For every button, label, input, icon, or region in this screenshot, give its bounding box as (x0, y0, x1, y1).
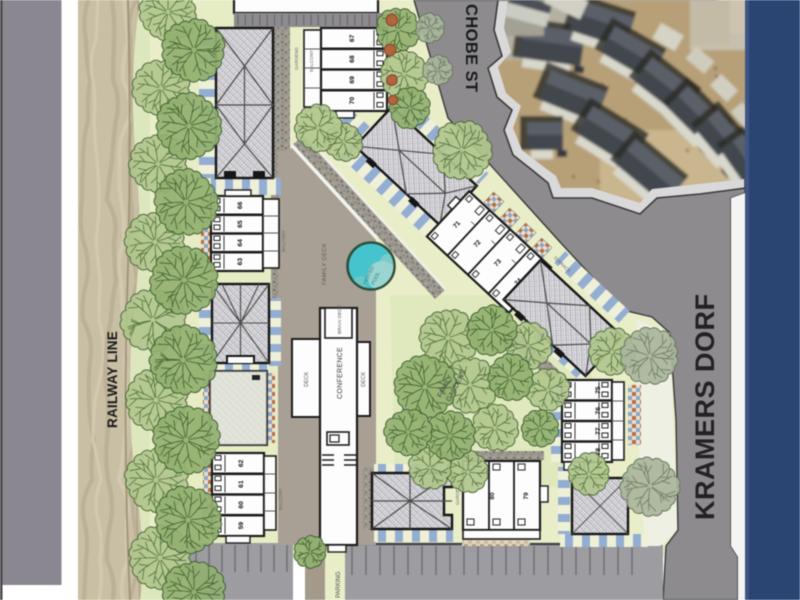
svg-text:66: 66 (237, 201, 244, 209)
svg-text:63: 63 (237, 258, 244, 266)
svg-text:DECK: DECK (361, 371, 367, 387)
svg-text:77: 77 (595, 427, 602, 435)
svg-text:64: 64 (237, 239, 244, 247)
svg-text:KRAMERS DORF: KRAMERS DORF (690, 294, 720, 521)
svg-text:BALCONY: BALCONY (278, 488, 283, 510)
svg-text:RAILWAY LINE: RAILWAY LINE (105, 331, 120, 428)
svg-text:CONFERENCE: CONFERENCE (337, 347, 344, 399)
svg-text:76: 76 (595, 407, 602, 415)
svg-text:79: 79 (523, 492, 530, 500)
svg-text:BALCONY: BALCONY (281, 230, 286, 252)
svg-text:CHOBE ST: CHOBE ST (462, 4, 480, 92)
svg-text:67: 67 (349, 34, 356, 42)
svg-text:70: 70 (349, 97, 356, 105)
svg-text:DECK: DECK (304, 371, 310, 387)
svg-text:69: 69 (349, 76, 356, 84)
svg-text:59: 59 (238, 522, 245, 530)
svg-text:75: 75 (595, 386, 602, 394)
svg-text:BRAAI DECK: BRAAI DECK (337, 304, 343, 334)
svg-text:80: 80 (489, 492, 496, 500)
svg-text:61: 61 (238, 480, 245, 488)
svg-text:GARDENS: GARDENS (294, 47, 299, 70)
svg-text:62: 62 (238, 459, 245, 467)
svg-text:BALCONY: BALCONY (309, 50, 314, 72)
svg-text:65: 65 (237, 220, 244, 228)
svg-text:PARKING: PARKING (336, 571, 342, 598)
svg-text:60: 60 (238, 501, 245, 509)
svg-text:FAMILY DECK: FAMILY DECK (322, 243, 328, 285)
svg-text:68: 68 (349, 55, 356, 63)
